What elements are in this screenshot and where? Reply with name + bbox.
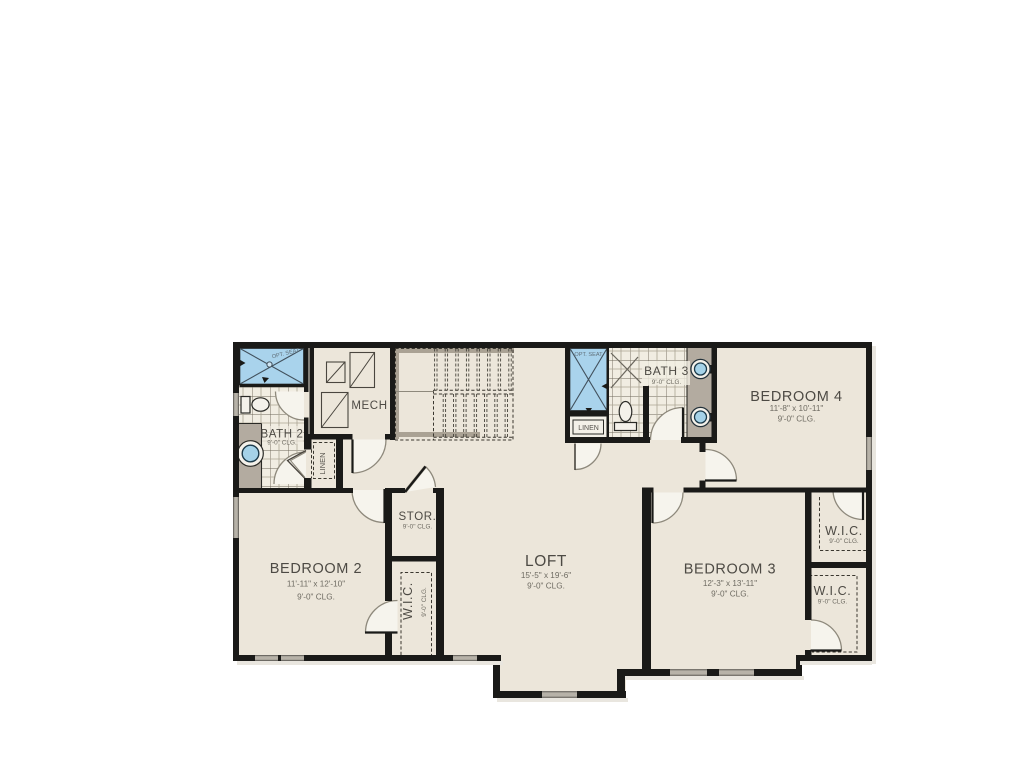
svg-text:11'-8" x 10'-11": 11'-8" x 10'-11" bbox=[770, 404, 824, 413]
svg-text:9'-0" CLG.: 9'-0" CLG. bbox=[267, 440, 297, 447]
svg-text:15'-5" x 19'-6": 15'-5" x 19'-6" bbox=[521, 571, 571, 580]
svg-text:W.I.C.: W.I.C. bbox=[814, 584, 852, 598]
svg-text:9'-0" CLG.: 9'-0" CLG. bbox=[403, 524, 433, 531]
svg-text:9'-0" CLG.: 9'-0" CLG. bbox=[527, 582, 565, 591]
svg-text:STOR.: STOR. bbox=[399, 511, 437, 523]
svg-text:LINEN: LINEN bbox=[578, 425, 599, 432]
svg-text:9'-0" CLG.: 9'-0" CLG. bbox=[711, 590, 749, 599]
svg-text:9'-0" CLG.: 9'-0" CLG. bbox=[778, 415, 816, 424]
svg-text:BEDROOM 2: BEDROOM 2 bbox=[270, 561, 362, 577]
svg-text:W.I.C.: W.I.C. bbox=[401, 582, 415, 620]
svg-text:LOFT: LOFT bbox=[525, 553, 567, 570]
svg-text:11'-11" x 12'-10": 11'-11" x 12'-10" bbox=[287, 580, 345, 589]
svg-text:BATH 3: BATH 3 bbox=[644, 364, 689, 378]
svg-text:BEDROOM 4: BEDROOM 4 bbox=[750, 389, 842, 405]
svg-text:9'-0" CLG.: 9'-0" CLG. bbox=[652, 379, 682, 386]
svg-text:9'-0" CLG.: 9'-0" CLG. bbox=[818, 599, 848, 606]
svg-text:W.I.C.: W.I.C. bbox=[825, 524, 863, 538]
svg-text:9'-0" CLG.: 9'-0" CLG. bbox=[829, 538, 859, 545]
svg-text:LINEN: LINEN bbox=[318, 452, 327, 474]
svg-text:OPT. SEAT: OPT. SEAT bbox=[574, 352, 603, 358]
svg-text:BEDROOM 3: BEDROOM 3 bbox=[684, 562, 776, 578]
svg-text:12'-3" x 13'-11": 12'-3" x 13'-11" bbox=[703, 579, 757, 588]
svg-text:9'-0" CLG.: 9'-0" CLG. bbox=[297, 593, 335, 602]
svg-text:9'-0" CLG.: 9'-0" CLG. bbox=[421, 587, 428, 617]
svg-text:MECH: MECH bbox=[351, 400, 387, 412]
